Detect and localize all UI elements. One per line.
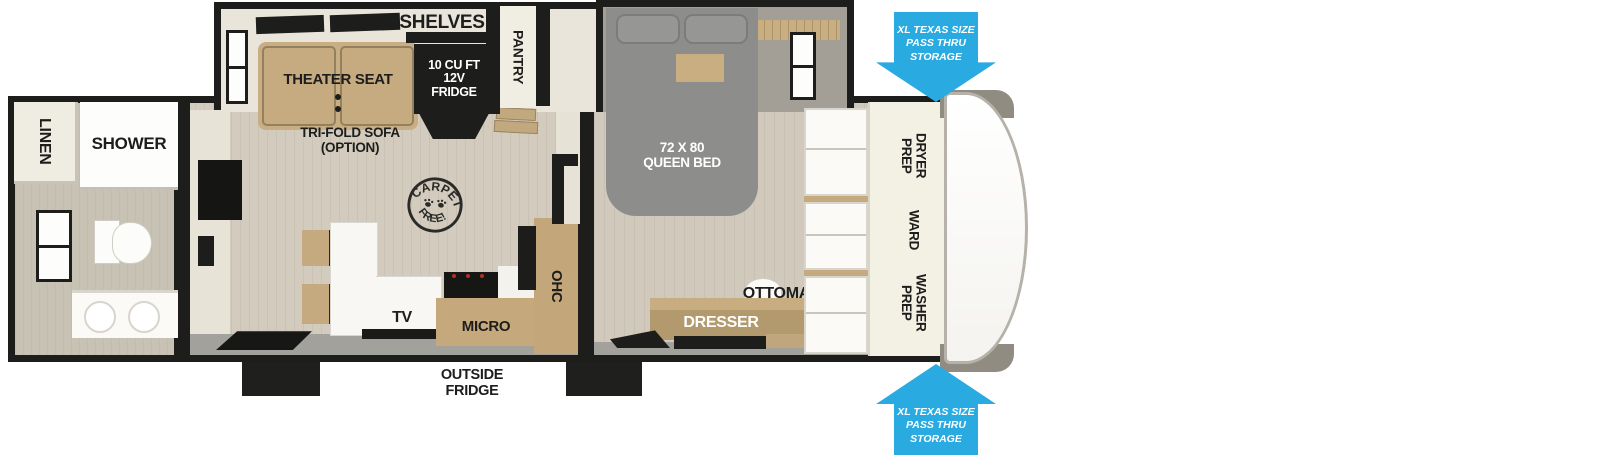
living-slide-window <box>226 30 248 104</box>
entry-step <box>566 362 642 396</box>
sink-left <box>84 301 116 333</box>
entry-steps <box>494 120 539 134</box>
vanity <box>72 290 178 338</box>
wardrobe-shelves <box>804 202 868 270</box>
entertainment-cabinet <box>518 226 536 290</box>
wardrobe-shelves <box>804 108 868 196</box>
wardrobe: DRYER PREP WARD WASHER PREP <box>868 102 956 356</box>
shower-label: SHOWER <box>80 102 178 187</box>
pass-thru-storage-arrow-top: XL TEXAS SIZE PASS THRU STORAGE <box>876 12 996 102</box>
burner-knob-icon <box>452 274 456 278</box>
linen-label: LINEN <box>14 102 75 181</box>
fridge-label: 10 CU FT 12V FRIDGE <box>414 44 494 114</box>
microwave-cabinet: MICRO <box>436 298 536 346</box>
cupholder-icon <box>335 94 341 100</box>
kitchen-counter <box>330 222 378 336</box>
cooktop <box>444 272 500 300</box>
linen-cabinet: LINEN <box>14 102 78 184</box>
pillow <box>616 14 680 44</box>
pass-thru-storage-label-top: XL TEXAS SIZE PASS THRU STORAGE <box>876 18 996 70</box>
wall-jog <box>198 236 214 266</box>
wardrobe-shelves <box>804 276 868 354</box>
shelf-divider <box>804 270 868 276</box>
fridge: 10 CU FT 12V FRIDGE <box>414 44 494 114</box>
bedroom-bottom-window <box>674 336 766 349</box>
shelf-divider <box>804 196 868 202</box>
cupholder-icon <box>335 106 341 112</box>
pantry-wall-right <box>536 2 550 106</box>
bathroom-window <box>36 210 72 282</box>
outside-fridge-label: OUTSIDE FRIDGE <box>420 366 524 402</box>
bed-runner <box>676 54 724 82</box>
queen-bed: 72 X 80 QUEEN BED <box>606 8 758 216</box>
ohc-label: OHC <box>534 218 578 354</box>
dinette-chair <box>302 284 332 324</box>
entry-step <box>242 362 320 396</box>
shelves <box>406 32 494 43</box>
rv-floorplan: LINEN SHOWER THEATER SEAT TRI-FOLD SOFA … <box>0 0 1600 455</box>
tv-unit <box>362 329 438 339</box>
pantry-wall-left <box>486 2 500 114</box>
queen-bed-label: 72 X 80 QUEEN BED <box>626 134 738 178</box>
theater-seat-label: THEATER SEAT <box>268 70 408 90</box>
wall-tv <box>198 160 242 220</box>
pass-thru-storage-arrow-bottom: XL TEXAS SIZE PASS THRU STORAGE <box>876 364 996 455</box>
kitchen-bedroom-wall <box>578 96 594 362</box>
entry-steps <box>496 107 537 121</box>
skylight-icon <box>256 15 325 34</box>
pantry: PANTRY <box>500 6 536 108</box>
toilet-bowl <box>112 222 152 264</box>
trifold-sofa-label: TRI-FOLD SOFA (OPTION) <box>288 124 412 158</box>
center-wall-jog <box>552 154 564 224</box>
front-cap <box>944 92 1028 364</box>
pantry-label: PANTRY <box>500 6 536 108</box>
living-left-wall-face <box>190 110 230 334</box>
bedroom-window-right <box>790 32 816 100</box>
dresser-label: DRESSER <box>666 310 776 336</box>
burner-knob-icon <box>466 274 470 278</box>
tv-label: TV <box>380 306 424 330</box>
burner-knob-icon <box>480 274 484 278</box>
shower: SHOWER <box>80 102 178 190</box>
sink-right <box>128 301 160 333</box>
pass-thru-storage-label-bottom: XL TEXAS SIZE PASS THRU STORAGE <box>876 401 996 451</box>
micro-label: MICRO <box>436 298 536 346</box>
pillow <box>684 14 748 44</box>
dinette-chair <box>302 230 332 266</box>
ohc-cabinet: OHC <box>534 218 578 354</box>
